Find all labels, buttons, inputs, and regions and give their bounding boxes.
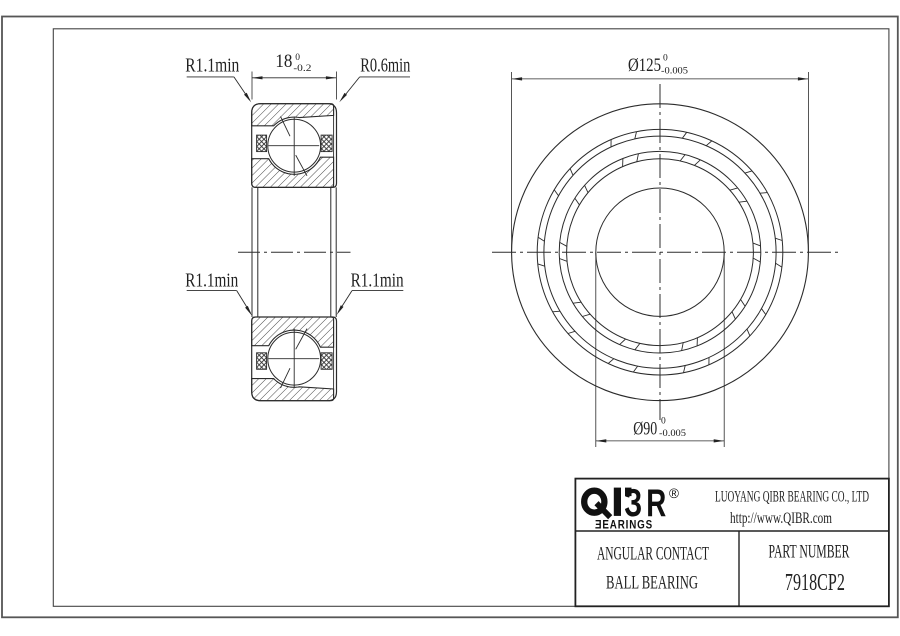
svg-text:http://www.QIBR.com: http://www.QIBR.com: [730, 508, 832, 527]
svg-text:-0.005: -0.005: [661, 67, 688, 77]
svg-text:7918CP2: 7918CP2: [785, 569, 845, 596]
svg-text:0: 0: [663, 54, 668, 64]
svg-text:BALL BEARING: BALL BEARING: [606, 573, 698, 594]
svg-text:R: R: [646, 482, 666, 525]
svg-text:®: ®: [669, 486, 679, 501]
svg-text:ANGULAR CONTACT: ANGULAR CONTACT: [597, 544, 709, 565]
svg-text:-0.005: -0.005: [659, 429, 686, 439]
svg-text:LUOYANG QIBR BEARING CO., LTD: LUOYANG QIBR BEARING CO., LTD: [715, 486, 869, 505]
svg-text:Ø90: Ø90: [633, 419, 657, 440]
svg-text:R1.1min: R1.1min: [185, 269, 238, 291]
svg-text:18: 18: [275, 51, 292, 72]
svg-text:0: 0: [295, 53, 300, 63]
svg-text:PART NUMBER: PART NUMBER: [769, 542, 850, 563]
svg-text:R1.1min: R1.1min: [351, 269, 404, 291]
svg-text:-0.2: -0.2: [293, 64, 311, 74]
svg-text:Ø125: Ø125: [628, 55, 661, 76]
svg-text:ƎEARINGS: ƎEARINGS: [595, 520, 653, 532]
svg-text:З: З: [624, 482, 642, 525]
svg-text:R1.1min: R1.1min: [185, 54, 239, 76]
svg-text:0: 0: [661, 416, 666, 426]
svg-text:R0.6min: R0.6min: [360, 54, 410, 76]
